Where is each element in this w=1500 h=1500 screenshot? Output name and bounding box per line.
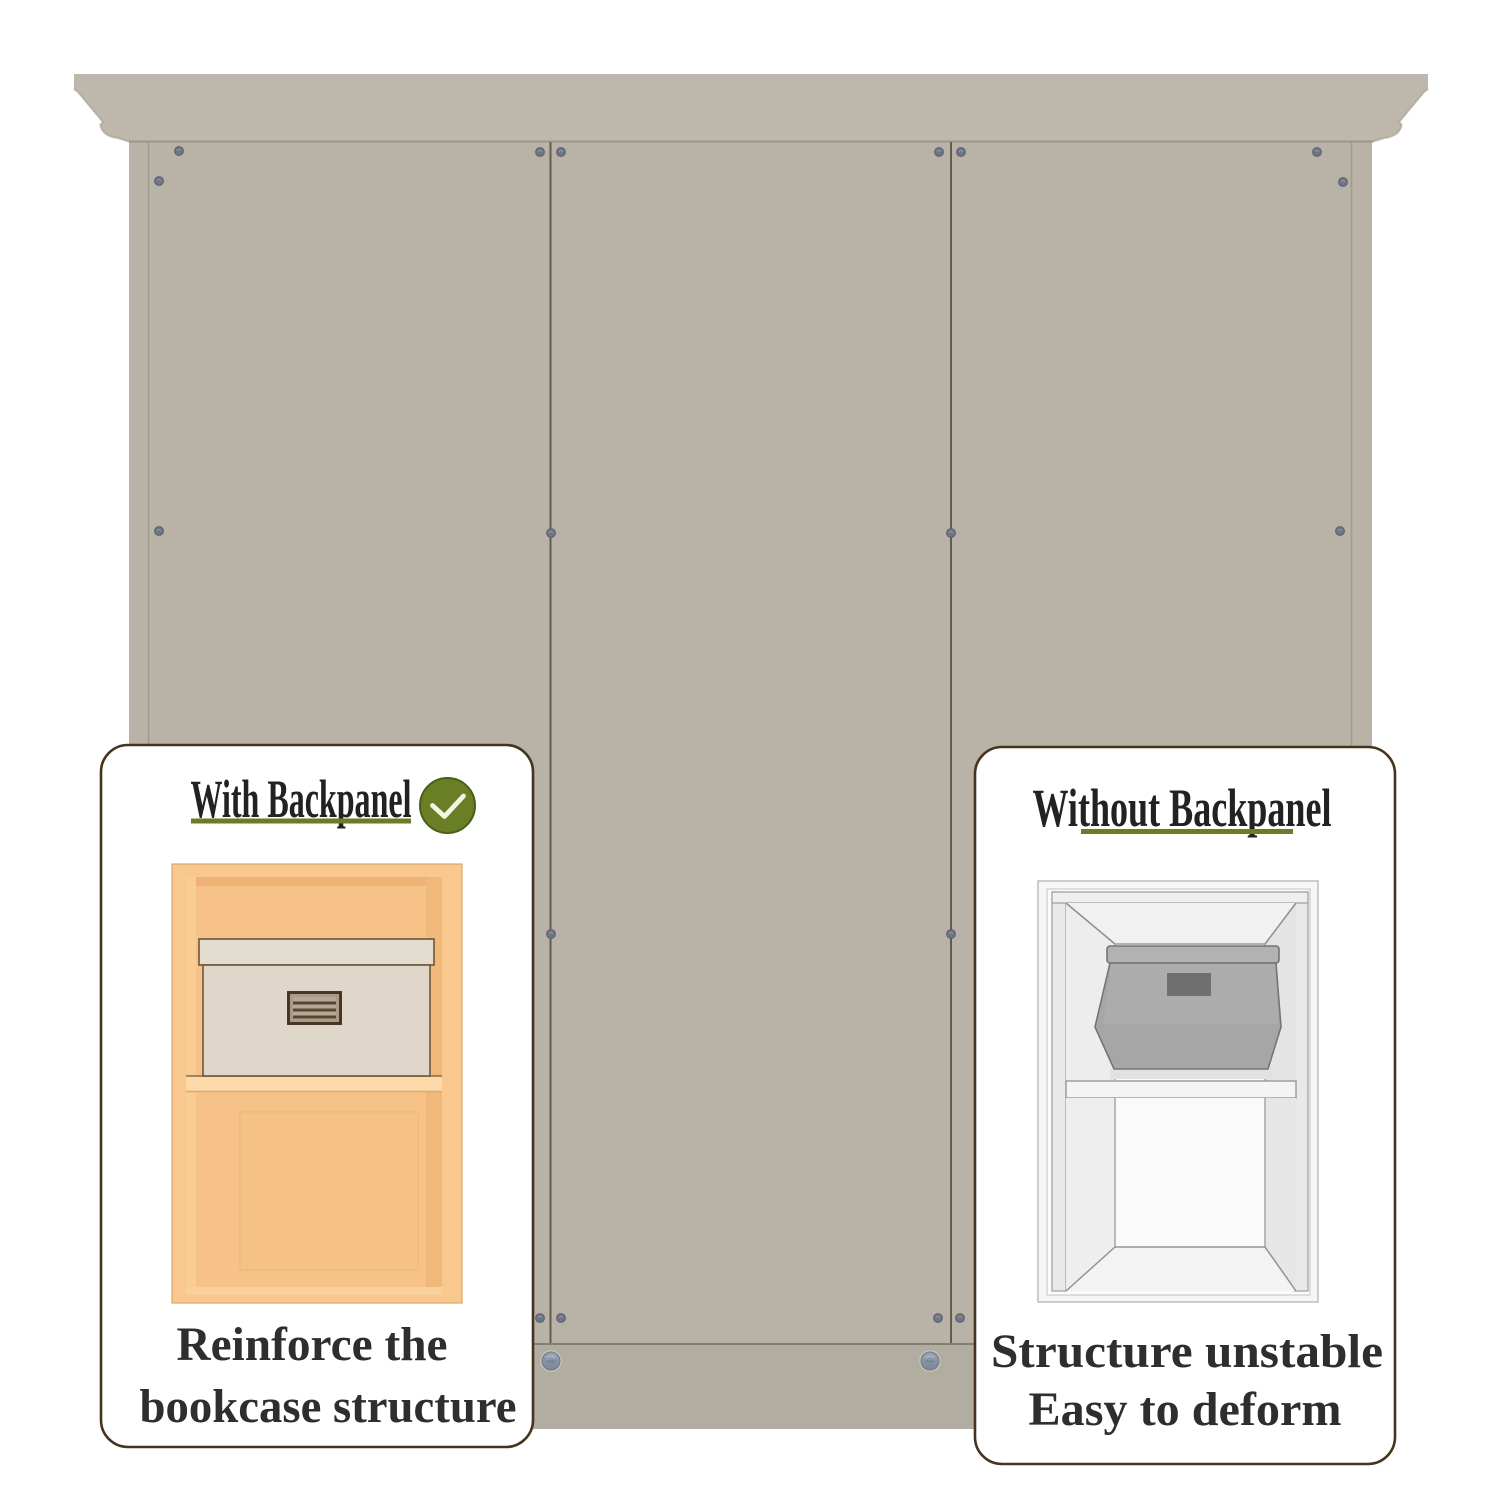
svg-text:Easy to deform: Easy to deform bbox=[1029, 1383, 1342, 1436]
svg-text:Structure unstable: Structure unstable bbox=[991, 1325, 1383, 1378]
svg-text:bookcase structure: bookcase structure bbox=[140, 1380, 517, 1433]
svg-text:Reinforce the: Reinforce the bbox=[177, 1318, 448, 1371]
